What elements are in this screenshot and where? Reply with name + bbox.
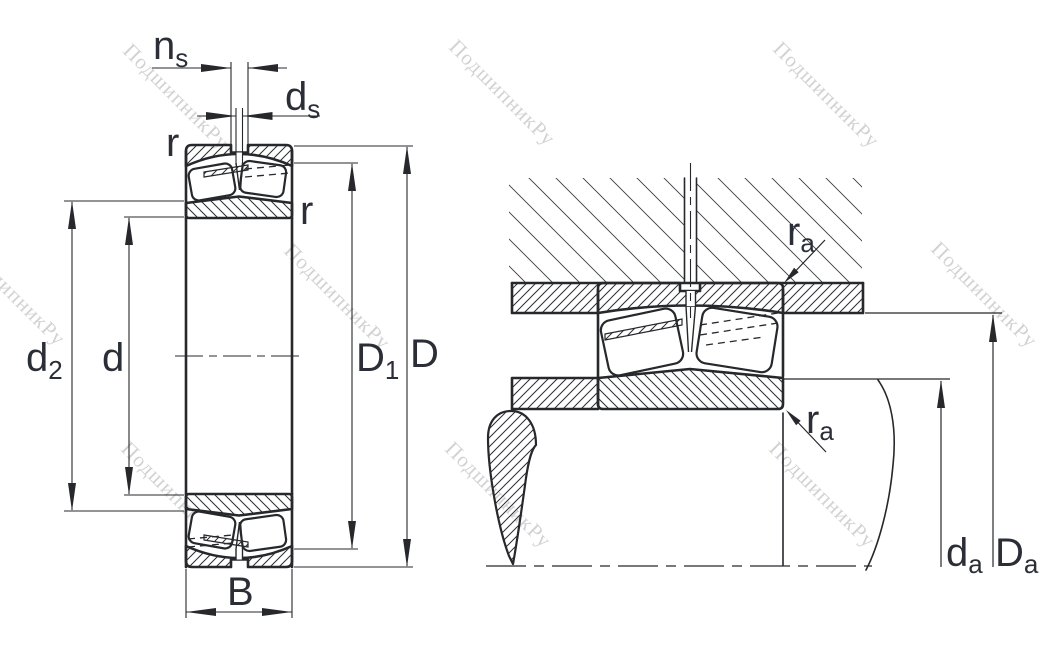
housing-seat-left [512,283,598,313]
watermark-text: ПодшипникРу [768,37,884,153]
label-B: B [227,570,254,614]
dimension-lines-right [941,315,993,567]
watermark-text: ПодшипникРу [926,237,1042,353]
bearing-cross-section-view [175,145,305,567]
label-r-inner: r [300,189,313,233]
lube-hole-top [236,153,243,164]
inner-ring-mounted-section [598,369,783,409]
shaft-abutment-strip [512,378,598,409]
label-ra-bottom: ra [806,398,834,446]
technical-drawing-canvas: ПодшипникРу ПодшипникРу ПодшипникРу Подш… [0,0,1050,650]
lube-hole-bottom [236,549,243,560]
extension-lines-right [784,313,1002,379]
label-Da: Da [995,531,1039,579]
watermark-text: ПодшипникРу [764,437,880,553]
label-D1: D1 [356,336,399,385]
roller-mounted-right [695,306,779,373]
label-ns: ns [153,24,188,73]
watermark-text: ПодшипникРу [444,35,560,151]
label-ds: ds [285,75,320,124]
bearing-technical-drawing-page: ПодшипникРу ПодшипникРу ПодшипникРу Подш… [0,0,1050,650]
label-r-top: r [166,121,179,165]
label-D: D [410,332,439,376]
label-da: da [946,531,983,579]
watermark-text: ПодшипникРу [0,235,71,351]
roller-mounted-left [599,307,685,378]
housing-seat-right [783,283,863,313]
label-d: d [102,336,124,380]
